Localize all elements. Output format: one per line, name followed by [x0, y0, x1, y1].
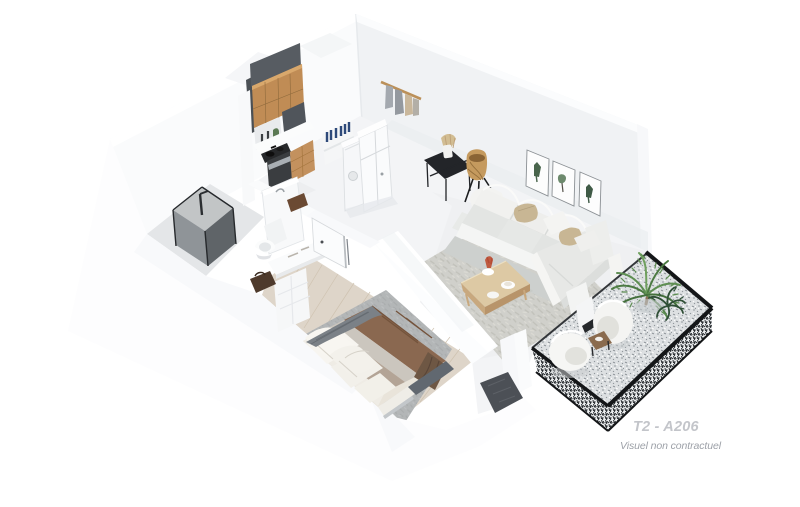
- svg-text:Visuel non contractuel: Visuel non contractuel: [620, 440, 722, 452]
- svg-text:T2 - A206: T2 - A206: [633, 419, 699, 435]
